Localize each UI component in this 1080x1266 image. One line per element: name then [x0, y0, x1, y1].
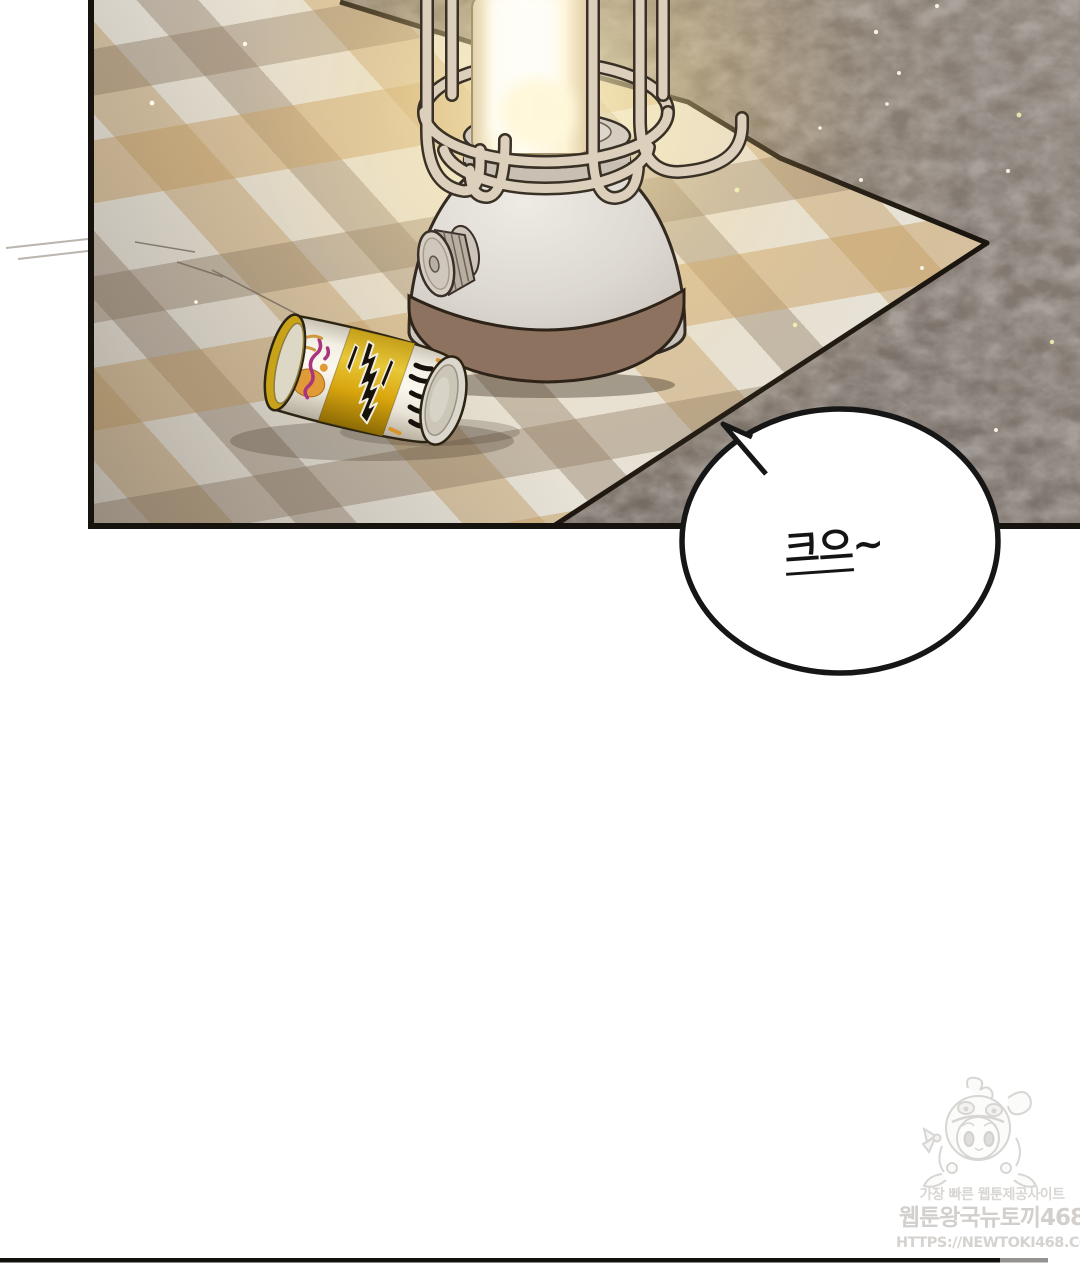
panel-border-left [88, 0, 94, 529]
lantern-glass-tube [472, 0, 592, 154]
comic-panel [88, 0, 1080, 529]
bubble-text-suffix: ~ [851, 521, 885, 567]
watermark-site-url: HTTPS://NEWTOKI468.COM [896, 1234, 1080, 1253]
watermark-site-name: 웹툰왕국뉴토끼468 [896, 1204, 1080, 1234]
site-watermark: 가장 빠른 웹툰제공사이트 웹툰왕국뉴토끼468 HTTPS://NEWTOKI… [896, 1186, 1080, 1253]
next-panel-top-line [0, 1258, 1048, 1263]
panel-border-bottom [88, 523, 1080, 529]
watermark-mascot-image [916, 1076, 1044, 1188]
margin-crease-lines [6, 239, 88, 259]
watermark-tagline: 가장 빠른 웹툰제공사이트 [896, 1186, 1080, 1204]
speech-bubble-text: 크으~ [782, 509, 925, 574]
bubble-text-emphasized: 크으 [783, 523, 854, 576]
comic-page: 크으~ 가장 빠른 웹툰제공사이트 웹툰왕국뉴토끼468 HTTPS://NEW… [0, 0, 1080, 1266]
